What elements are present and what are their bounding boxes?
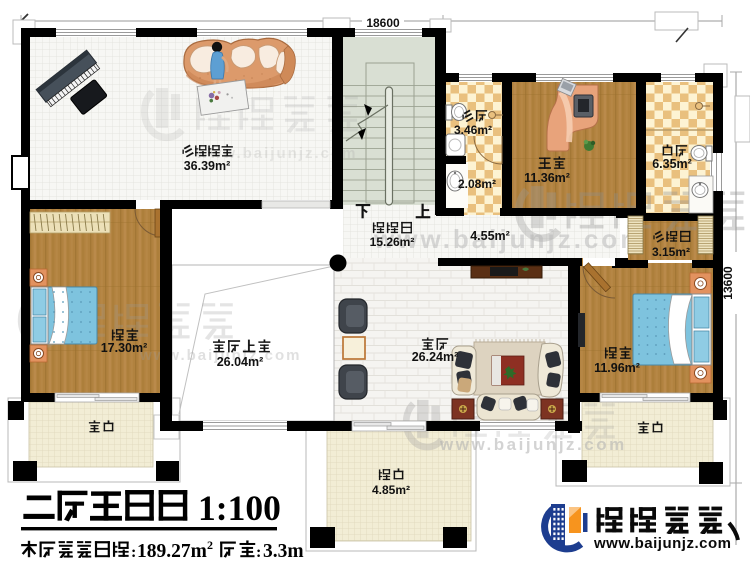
svg-text:2: 2 (207, 538, 213, 552)
svg-text:6.35m²: 6.35m² (652, 157, 692, 171)
svg-text:4.85m²: 4.85m² (372, 483, 410, 497)
svg-text:11.96m²: 11.96m² (594, 361, 640, 375)
svg-text:26.24m²: 26.24m² (412, 350, 459, 364)
svg-text:1:100: 1:100 (198, 488, 281, 528)
svg-text:13600: 13600 (721, 266, 735, 300)
svg-text:11.36m²: 11.36m² (524, 171, 570, 185)
svg-text:3.3m: 3.3m (263, 541, 304, 562)
svg-text:3.46m²: 3.46m² (454, 123, 492, 137)
svg-text:36.39m²: 36.39m² (184, 159, 231, 173)
svg-text:3.15m²: 3.15m² (652, 245, 690, 259)
svg-text:15.26m²: 15.26m² (370, 235, 415, 249)
svg-text:26.04m²: 26.04m² (217, 355, 264, 369)
svg-text:www.baijunjz.com: www.baijunjz.com (439, 435, 627, 454)
svg-text::: : (131, 544, 136, 561)
svg-text:4.55m²: 4.55m² (470, 229, 510, 243)
svg-text::: : (256, 544, 261, 561)
svg-text:189.27m: 189.27m (137, 541, 207, 562)
svg-text:18600: 18600 (366, 16, 400, 30)
svg-text:www.baijunjz.com: www.baijunjz.com (593, 535, 731, 552)
svg-text:17.30m²: 17.30m² (101, 341, 148, 355)
svg-text:2.08m²: 2.08m² (458, 177, 496, 191)
